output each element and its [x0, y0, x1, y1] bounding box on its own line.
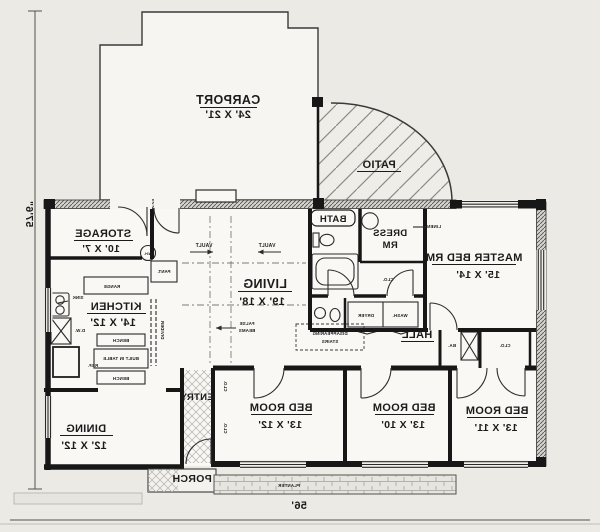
room-label-dress-1: DRESS [373, 228, 407, 239]
chase-box [461, 332, 478, 360]
hall-bath-toilet-icon [330, 309, 340, 322]
window-kitchen [44, 288, 53, 332]
label-stairs-2: STAIRS [322, 339, 339, 344]
room-label-bed2: BED ROOM [373, 402, 436, 414]
dim-height-label: 57'6" [23, 201, 35, 228]
label-dryer: DRYER [357, 313, 374, 318]
label-linen: LINEN [427, 224, 441, 229]
label-divider: DIVIDER [160, 320, 165, 340]
room-size-master: 15' X 14' [456, 269, 500, 281]
room-label-bed1: BED ROOM [250, 402, 313, 414]
label-pantry: PANT. [157, 269, 170, 274]
room-label-bed3: BED ROOM [466, 405, 529, 417]
window-master-north [462, 200, 518, 209]
label-range: RANGE [104, 284, 121, 289]
label-built-in-table: BUILT IN TABLE [103, 356, 139, 361]
label-bench-bottom: BENCH [113, 376, 129, 381]
room-label-kitchen: KITCHEN [91, 301, 142, 313]
walkway [14, 493, 142, 504]
room-label-entry: ENTRY [180, 392, 214, 403]
room-label-master: MASTER BED RM [426, 252, 523, 264]
label-washer: WASH. [392, 313, 407, 318]
room-size-bed2: 13' X 10' [381, 419, 425, 431]
entry-floor-hatch [184, 370, 211, 463]
refrigerator-box [53, 347, 79, 377]
label-false-beams-1: FALSE [240, 321, 255, 326]
room-label-hall: HALL [402, 329, 433, 341]
room-size-dining: 12' X 12' [61, 440, 107, 452]
label-vault-left: VAULT [196, 243, 213, 249]
room-size-kitchen: 14' X 12' [90, 317, 136, 329]
window-bed1 [240, 460, 306, 469]
label-refrigerator: REF. [88, 363, 98, 368]
room-label-bath: BATH [320, 214, 347, 225]
toilet-icon [320, 234, 334, 245]
window-dining [44, 396, 53, 438]
room-label-dining: DINING [66, 423, 106, 435]
room-label-storage: STORAGE [75, 228, 131, 240]
room-size-storage: 10' X 7' [82, 243, 120, 255]
label-sink: SINK [72, 295, 84, 300]
room-label-carport: CARPORT [196, 93, 261, 107]
north-wall [44, 200, 456, 209]
room-size-bed3: 13' X 11' [474, 422, 517, 434]
basin-icon [362, 213, 378, 229]
dim-width-label: 56' [291, 500, 307, 512]
floor-plan-scan: CARPORT 24' X 21' PATIO STORAGE 10' X 7'… [0, 0, 600, 532]
room-label-porch: PORCH [172, 473, 211, 485]
window-bed3 [464, 460, 528, 469]
fireplace [196, 190, 236, 202]
label-closet-entry-1: CLO. [223, 380, 228, 391]
label-stairs-1: DISAPPEARING [312, 331, 348, 336]
toilet-tank [313, 233, 319, 247]
room-label-dress-2: RM [382, 240, 397, 251]
label-closet-hall: CLO. [499, 343, 510, 348]
label-planter: PLANTER [277, 483, 299, 488]
window-master-east [537, 250, 547, 310]
label-bath-abbr: BA. [448, 343, 456, 348]
room-size-carport: 24' X 21' [205, 109, 251, 121]
room-label-patio: PATIO [362, 159, 396, 171]
room-size-living: 19' X 18' [239, 296, 285, 308]
carport-post [312, 97, 323, 107]
label-false-beams-2: BEAMS [239, 328, 256, 333]
label-bench-top: BENCH [113, 338, 129, 343]
planter-strip [214, 475, 456, 494]
window-bed2 [362, 460, 428, 469]
label-vault-right: VAULT [259, 243, 276, 249]
label-dishwasher: D.W. [75, 328, 85, 333]
label-water-heater: W.H. [144, 252, 152, 256]
hall-bath-lav-icon [315, 308, 326, 319]
east-wall [537, 202, 547, 466]
room-size-bed1: 13' X 12' [258, 419, 302, 431]
floor-plan-canvas: CARPORT 24' X 21' PATIO STORAGE 10' X 7'… [0, 0, 600, 532]
label-closet-entry-2: CLO. [223, 422, 228, 433]
label-closet-dress: CLO. [382, 277, 393, 282]
room-label-living: LIVING [243, 277, 287, 291]
